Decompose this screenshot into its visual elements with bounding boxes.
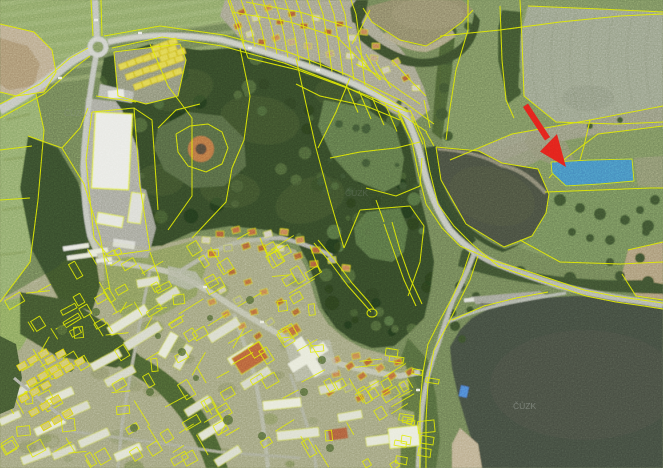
svg-text:ČÚZK: ČÚZK: [64, 108, 87, 118]
svg-text:ČÚZK: ČÚZK: [345, 188, 368, 198]
svg-text:ČÚZK: ČÚZK: [513, 401, 536, 411]
svg-text:ČÚZK: ČÚZK: [256, 373, 279, 383]
